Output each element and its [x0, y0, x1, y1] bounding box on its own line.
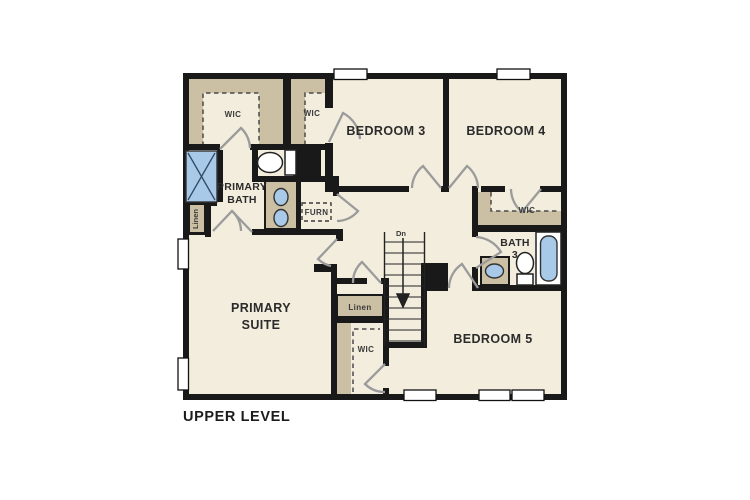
shelf-band	[337, 323, 351, 394]
window	[178, 239, 189, 269]
wall-exterior-right	[561, 73, 567, 400]
toilet	[517, 253, 534, 274]
room-label-linen-upper: Linen	[191, 209, 200, 229]
window	[479, 390, 510, 401]
wall-segment	[325, 143, 333, 192]
room-label-bedroom3: BEDROOM 3	[346, 124, 425, 138]
wall-segment	[325, 186, 409, 192]
shelf-band	[189, 79, 283, 93]
room-label-wic-bedroom5: WIC	[358, 345, 375, 354]
toilet-tank	[285, 150, 296, 175]
window	[178, 358, 189, 390]
wall-segment	[217, 150, 223, 202]
wall-segment	[472, 186, 478, 237]
room-label-wic-bedroom4: WIC	[519, 206, 536, 215]
wall-segment	[331, 278, 367, 284]
wall-segment	[478, 225, 561, 232]
room-label-wic-primary: WIC	[225, 110, 242, 119]
room-label-bath3-line2: 3	[512, 249, 518, 261]
sink	[486, 264, 504, 278]
room-label-wic-bedroom3: WIC	[304, 109, 321, 118]
floor-plan-page: Dn WIC	[0, 0, 750, 500]
chase	[293, 148, 321, 182]
room-label-primary-bath-line1: PRIMARY	[217, 181, 267, 193]
window	[497, 69, 530, 80]
page-title: UPPER LEVEL	[183, 409, 290, 425]
room-label-bedroom5: BEDROOM 5	[453, 332, 532, 346]
room-label-primary-suite-line1: PRIMARY	[231, 301, 291, 315]
shelf-band	[259, 93, 283, 144]
window	[404, 390, 436, 401]
wall-segment	[331, 265, 337, 394]
room-label-primary-suite-line2: SUITE	[242, 318, 281, 332]
room-label-furnace: FURN	[305, 208, 329, 217]
toilet	[258, 153, 283, 173]
room-label-linen-lower: Linen	[348, 303, 371, 312]
sink	[274, 189, 288, 206]
room-label-bedroom4: BEDROOM 4	[466, 124, 545, 138]
wall-segment	[383, 342, 427, 348]
sink	[274, 210, 288, 227]
bathtub	[541, 236, 558, 281]
window	[512, 390, 544, 401]
wall-segment	[481, 186, 505, 192]
wall-segment	[427, 285, 448, 291]
wall-segment	[441, 186, 449, 192]
wall-exterior-left	[183, 73, 189, 400]
room-label-bath3-line1: BATH	[500, 237, 530, 249]
wall-segment	[283, 73, 291, 150]
wall-segment	[443, 73, 449, 192]
shelf-band	[291, 79, 325, 93]
shelf-band	[478, 192, 491, 211]
wall-segment	[189, 144, 220, 150]
floor-plan-drawing: Dn WIC	[0, 0, 750, 500]
toilet-tank	[517, 274, 533, 285]
window	[334, 69, 367, 80]
room-label-primary-bath-line2: BATH	[227, 194, 257, 206]
stairs-dn-label: Dn	[396, 229, 406, 238]
